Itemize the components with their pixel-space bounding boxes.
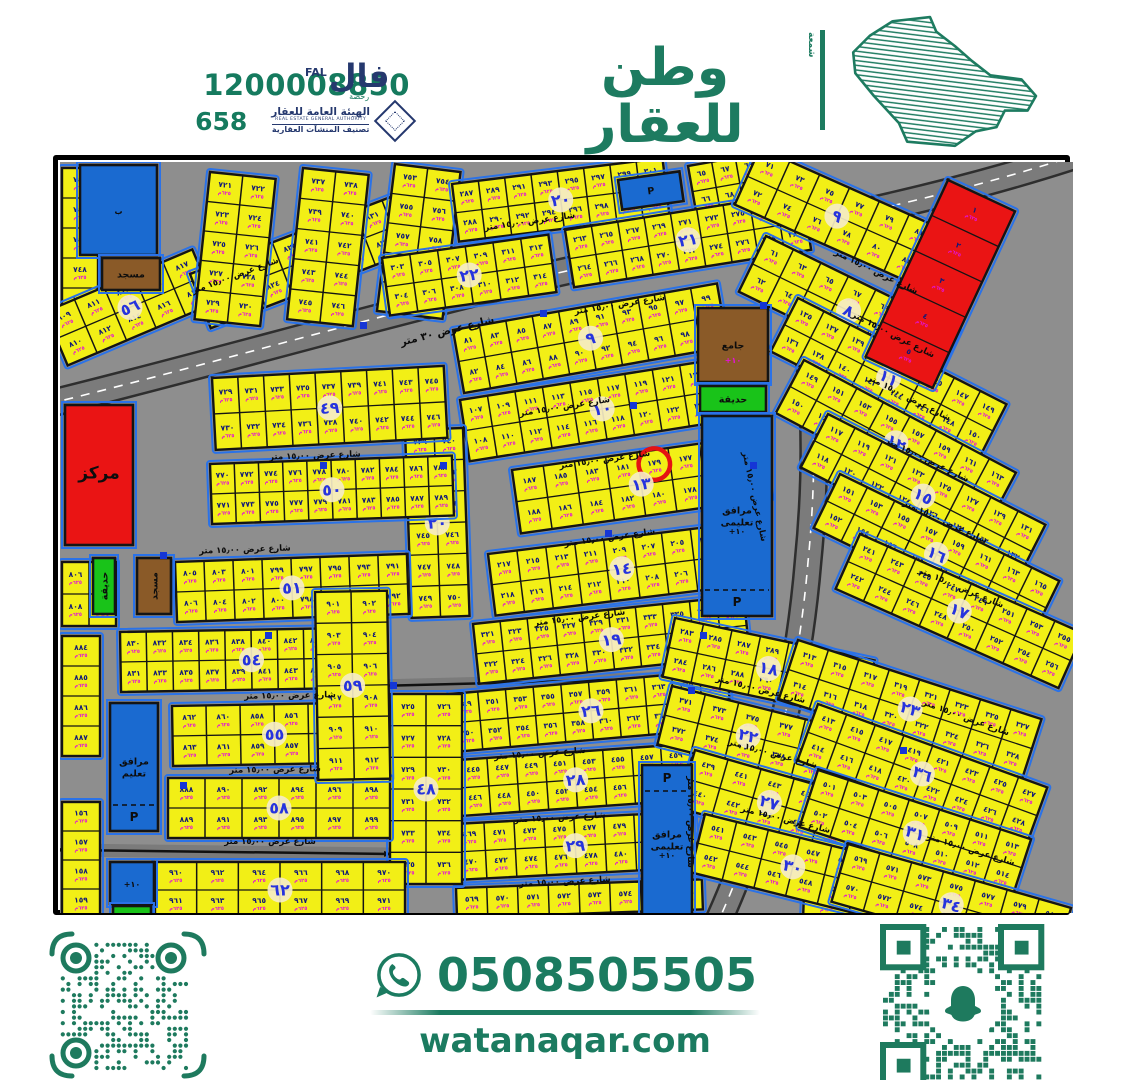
plot-area-label: ٦٢٥م [206, 677, 219, 683]
street-name-label: شارع عرض ١٥٫٠٠ متر [243, 690, 336, 702]
plot-cell[interactable]: ١٥٩ [74, 896, 88, 905]
plot-cell[interactable]: ٨١ [463, 335, 474, 345]
plot-cell[interactable]: ٨٥٩ [251, 741, 265, 750]
plot-cell[interactable]: ٨٨٧ [74, 733, 88, 742]
utility-dot-icon [605, 530, 612, 537]
plot-cell[interactable]: ٧٧٧ [289, 498, 303, 507]
plot-cell[interactable]: ٩١٢ [365, 755, 379, 764]
plot-cell[interactable]: ٢١٢ [587, 579, 602, 590]
plot-cell[interactable]: ٩٦٧ [294, 896, 308, 905]
plot-cell[interactable]: ٧٩١ [386, 561, 400, 570]
plot-cell[interactable]: ٧٥٨ [428, 235, 443, 246]
plot-cell[interactable]: ٩٠٣ [327, 631, 341, 640]
plot-cell[interactable]: ٤٥٥ [611, 754, 626, 764]
plot-cell[interactable]: ٧٤٨ [73, 265, 87, 274]
plot-cell[interactable]: ٣٦٣ [651, 682, 666, 692]
plot-cell[interactable]: ٣١١ [501, 246, 516, 257]
plot-cell[interactable]: ٣٢٨ [565, 650, 580, 660]
plot-cell[interactable]: ٧٤١ [373, 379, 387, 389]
plot-cell[interactable]: ٧٤٣ [301, 267, 316, 277]
special-area-6[interactable]: حديقة [697, 383, 769, 415]
brand-name-arabic: وطن للعقار [520, 40, 810, 154]
plot-area-label: ٦٢٥م [217, 510, 230, 516]
plot-cell[interactable]: ٨٩٤ [291, 785, 305, 794]
plot-cell[interactable]: ٩٧٠ [377, 868, 391, 877]
plot-cell[interactable]: ١٨٤ [589, 498, 604, 509]
plot-cell[interactable]: ٨٦٠ [216, 712, 230, 721]
plot-cell[interactable]: ٨٠٢ [242, 596, 256, 605]
plot-cell[interactable]: ٩٦٥ [252, 896, 266, 905]
plot-cell[interactable]: ٤٥٦ [613, 782, 628, 792]
plot-cell[interactable]: ٤٤٥ [466, 764, 481, 774]
plot-cell[interactable]: ٧٣٥ [296, 383, 311, 393]
plot-cell[interactable]: ٨٨٩ [180, 815, 194, 824]
plot-cell[interactable]: ٧٣٠ [220, 423, 234, 433]
plot-cell[interactable]: ٧٢٣ [215, 209, 230, 219]
plot-cell[interactable]: ٧٩٧ [299, 564, 313, 573]
plot-cell[interactable]: ٣٥٢ [488, 725, 503, 735]
block-number: ٥٩ [343, 676, 363, 695]
plot-area-label: ٦٢٥م [434, 473, 447, 479]
plot-cell[interactable]: ٢٩٧ [591, 172, 606, 183]
plot-cell[interactable]: ٩٦١ [169, 896, 183, 905]
plot-cell[interactable]: ٤٧٤ [524, 854, 538, 864]
plot-cell[interactable]: ٧٣٦ [437, 860, 451, 869]
plot-cell[interactable]: ٩٠٢ [362, 599, 376, 608]
plot-cell[interactable]: ١٥٦ [74, 809, 88, 818]
plot-cell[interactable]: ٣٥١ [485, 696, 499, 706]
plot-cell[interactable]: ٧٤٦ [426, 412, 441, 422]
plot-cell[interactable]: ٧٧٥ [265, 499, 279, 508]
special-area-0[interactable]: ب [77, 162, 160, 258]
plot-cell[interactable]: ٧٢٤ [248, 213, 263, 223]
plot-cell[interactable]: ٧٥٦ [432, 205, 447, 216]
plot-area-label: ٦٢٥م [486, 706, 500, 713]
plot-cell[interactable]: ٧٤٤ [401, 413, 415, 423]
block-number: ٤٩ [319, 398, 340, 418]
plot-cell[interactable]: ٧٣٩ [308, 206, 323, 216]
plot-cell[interactable]: ٩٠٩ [328, 725, 342, 734]
plot-cell[interactable]: ١٨٠ [651, 489, 666, 500]
block-number: ٢٠ [550, 189, 572, 210]
plot-cell[interactable]: ٧٧٦ [288, 468, 302, 477]
plot-cell[interactable]: ٧٥٣ [403, 172, 418, 183]
plot-cell[interactable]: ٢٠٦ [674, 568, 689, 579]
plot-cell[interactable]: ٤٧٠ [464, 857, 478, 867]
plot-cell[interactable]: ١٥٨ [74, 867, 88, 876]
plot-cell[interactable]: ٢٩٣ [538, 178, 553, 189]
plot-cell[interactable]: ٣٢٣ [507, 626, 522, 636]
plot-cell[interactable]: ٤٥٠ [526, 788, 540, 798]
plot-cell[interactable]: ٧٧٣ [241, 499, 255, 508]
special-area-11[interactable]: +١٠ [107, 859, 157, 907]
plot-cell[interactable]: ٨٦٣ [183, 743, 197, 752]
plot-cell[interactable]: ٩١٠ [364, 724, 378, 733]
plot-cell[interactable]: ٢٩٨ [594, 201, 609, 212]
plot-cell[interactable]: ٩٠١ [326, 599, 340, 608]
special-area-label: مسجد [150, 572, 161, 600]
plot-cell[interactable]: ٧٣٠ [437, 765, 451, 774]
plot-strip[interactable]: ٧٣٧٦٢٥م٧٣٨٦٢٥م٧٣٩٦٢٥م٧٤٠٦٢٥م٧٤١٦٢٥م٧٤٢٦٢… [284, 165, 372, 330]
plot-cell[interactable]: ٧٨٠ [336, 466, 350, 475]
plot-cell[interactable]: ٧٨٤ [385, 464, 399, 473]
plot-area-label: ٦٢٥م [336, 878, 349, 884]
plot-cell[interactable]: ٥٦٩ [465, 894, 479, 903]
plot-area-label: ٦٢٥م [328, 703, 341, 709]
plot-cell[interactable]: ٤٥٣ [582, 756, 597, 766]
plot-area-label: ٦٢٥م [185, 608, 198, 614]
plot-area-label: ٦٢٥م [378, 878, 391, 884]
plot-cell[interactable]: ٨٣٣ [153, 668, 167, 677]
plot-cell[interactable]: ٧٤٥ [424, 376, 439, 386]
plot-cell[interactable]: ٨٩٣ [254, 815, 268, 824]
plot-area-label: ٦٢٥م [498, 801, 511, 808]
plot-cell[interactable]: ٢١٧ [497, 559, 512, 570]
plot-cell[interactable]: ٩٤ [627, 338, 638, 348]
plot-cell[interactable]: ٧٣٤ [437, 829, 451, 838]
plot-cell[interactable]: ٣٢٤ [511, 656, 526, 666]
plot-area-label: ٦٢٥م [555, 862, 568, 869]
plot-area-label: ٦٢٥م [329, 735, 342, 741]
plot-cell[interactable]: ٩٦٢ [211, 868, 225, 877]
plot-cell[interactable]: ٧٤١ [305, 237, 320, 247]
plot-area-label: ٦٢٥م [437, 712, 450, 718]
plot-cell[interactable]: ٧٧٤ [264, 469, 278, 478]
map-block-27[interactable]: ٩٠١٦٢٥م٩٠٢٦٢٥م٩٠٣٦٢٥م٩٠٤٦٢٥م٩٠٥٦٢٥م٩٠٦٦٢… [312, 588, 393, 783]
plot-cell[interactable]: ٣٢١ [480, 629, 495, 639]
plot-cell[interactable]: ٢٨٩ [485, 185, 500, 196]
plot-cell[interactable]: ٨٣٢ [153, 638, 167, 647]
map-block-19[interactable]: ٧٢٥٦٢٥م٧٢٦٦٢٥م٧٢٧٦٢٥م٧٢٨٦٢٥م٧٢٩٦٢٥م٧٣٠٦٢… [387, 691, 465, 887]
plot-cell[interactable]: ٢٨٨ [463, 217, 478, 228]
special-area-10[interactable]: مرافقتعليمP [107, 700, 161, 834]
plot-cell[interactable]: ٩٠٥ [327, 662, 341, 671]
plot-cell[interactable]: ٣٥٦ [543, 720, 558, 730]
plot-cell[interactable]: ٢١٤ [558, 583, 573, 594]
plot-cell[interactable]: ٢١١ [583, 548, 598, 559]
plot-cell[interactable]: ٨٣١ [127, 669, 141, 678]
plot-cell[interactable]: ٨٨٤ [74, 643, 88, 652]
plot-cell[interactable]: ٨٠١ [241, 566, 255, 575]
plot-cell[interactable]: ٨٨٦ [74, 703, 88, 712]
plot-cell[interactable]: ٧٢٧ [401, 734, 415, 743]
plot-cell[interactable]: ٣١٤ [533, 271, 548, 282]
plot-cell[interactable]: ٧٤٢ [375, 415, 390, 425]
plot-cell[interactable]: ٥٧٤ [618, 889, 632, 898]
plot-cell[interactable]: ٨٩٩ [365, 815, 379, 824]
special-area-sub: +١٠ [729, 527, 745, 536]
plot-cell[interactable]: ٨٠٨ [69, 602, 83, 611]
plot-cell[interactable]: ٧٧١ [217, 500, 231, 509]
plot-cell[interactable]: ٧٨٥ [386, 494, 400, 503]
special-area-4[interactable]: مسجد [134, 555, 174, 617]
plot-cell[interactable]: ٨٥٧ [285, 741, 299, 750]
plot-cell[interactable]: ٧٤٢ [337, 240, 352, 250]
plot-cell[interactable]: ٤٤٨ [497, 790, 512, 800]
plot-cell[interactable]: ٤٧٣ [522, 826, 537, 836]
map-block-26[interactable]: ٨٨٨٦٢٥م٨٩٠٦٢٥م٨٩٢٦٢٥م٨٩٤٦٢٥م٨٩٦٦٢٥م٨٩٨٦٢… [165, 775, 393, 841]
plot-cell[interactable]: ٥٧٢ [557, 891, 571, 900]
plot-cell[interactable]: ٩٦٨ [336, 868, 350, 877]
plot-area-label: ٦٢٥م [254, 825, 267, 831]
plot-cell[interactable]: ٨٠٦ [184, 598, 198, 607]
plot-cell[interactable]: ٤٧٩ [612, 821, 627, 831]
plot-cell[interactable]: ٣٢٢ [484, 659, 499, 669]
subdivision-map-frame: ٧٤٥٦٢٥م٧٤٦٦٢٥م٧٤٧٦٢٥م٧٤٨٦٢٥م٧٤٩٦٢٥م٨٠٩٦٢… [53, 155, 1070, 915]
plot-area-label: ٦٢٥م [525, 864, 538, 871]
plot-cell[interactable]: ٧٥٤ [435, 176, 450, 187]
plot-cell[interactable]: ٥٧١ [526, 892, 540, 901]
plot-cell[interactable]: ٧٣١ [401, 797, 415, 806]
plot-cell[interactable]: ٧٣١ [244, 386, 258, 396]
special-area-2[interactable]: مركز [62, 402, 136, 548]
plot-cell[interactable]: ٣٠٤ [394, 290, 409, 301]
plot-area-label: ٦٢٥م [154, 678, 167, 684]
plot-cell[interactable]: ٣٦١ [624, 684, 638, 694]
plot-cell[interactable]: ٢١٨ [500, 590, 515, 601]
plot-cell[interactable]: ٤٨٠ [614, 849, 628, 859]
plot-cell[interactable]: ٧٤٩ [418, 593, 432, 602]
map-block-21[interactable]: ٧٢٩٦٢٥م٧٣١٦٢٥م٧٣٣٦٢٥م٧٣٥٦٢٥م٧٣٧٦٢٥م٧٣٩٦٢… [209, 363, 451, 453]
plot-area-label: ٦٢٥م [425, 386, 438, 393]
plot-cell[interactable]: ٧٣٦ [298, 419, 313, 429]
plot-cell[interactable]: ٧٢٥ [212, 239, 227, 249]
street-name-label: شارع عرض ١٥٫٠٠ متر [228, 764, 321, 776]
plot-area-label: ٦٢٥م [314, 507, 327, 513]
block-number: ٥٤ [242, 650, 262, 669]
plot-cell[interactable]: ٣٥٣ [513, 694, 528, 704]
plot-area-label: ٦٢٥م [221, 433, 234, 440]
block-number: ٢٨ [565, 770, 586, 790]
plot-area-label: ٦٢٥م [258, 676, 271, 682]
plot-cell[interactable]: ٣٥٧ [568, 689, 583, 699]
plot-cell[interactable]: ٨٦٢ [182, 713, 196, 722]
plot-cell[interactable]: ٨٩٢ [254, 785, 268, 794]
plot-area-label: ٦٢٥م [219, 397, 232, 404]
plot-cell[interactable]: ٢٩٥ [564, 175, 579, 186]
plot-cell[interactable]: ٢٠٥ [670, 537, 685, 548]
plot-cell[interactable]: ٧٩٣ [357, 562, 371, 571]
plot-cell[interactable]: ٧٤٣ [399, 377, 414, 387]
plot-area-label: ٦٢٥م [419, 604, 432, 610]
plot-cell[interactable]: ٨٩٨ [365, 785, 379, 794]
plot-cell[interactable]: ٢٩١ [512, 182, 527, 193]
block-number: ٢٩ [565, 836, 586, 856]
plot-area-label: ٦٢٥م [495, 865, 508, 872]
plot-cell[interactable]: ٧٩٢ [387, 591, 401, 600]
plot-cell[interactable]: ٢١٣ [554, 552, 569, 563]
qr-code-snapchat[interactable] [878, 922, 1058, 1080]
plot-cell[interactable]: ٩٠٤ [363, 630, 377, 639]
special-area-5[interactable]: جامع+١٠ [695, 305, 771, 385]
plot-cell[interactable]: ٨٩١ [217, 815, 231, 824]
plot-cell[interactable]: ٨٦١ [217, 742, 231, 751]
plot-cell[interactable]: ٨٤٢ [284, 636, 298, 645]
plot-cell[interactable]: ٧٢٨ [437, 734, 451, 743]
plot-cell[interactable]: ٧٣٤ [272, 420, 286, 430]
plot-area-label: ٦٢٥م [328, 795, 341, 801]
plot-cell[interactable]: ٨٤٣ [284, 666, 298, 675]
plot-cell[interactable]: ٧٨٧ [410, 494, 424, 503]
plot-cell[interactable]: ٧٢٩ [219, 387, 234, 397]
plot-cell[interactable]: ٨٠٦ [69, 570, 83, 579]
plot-cell[interactable]: ٣٥٥ [541, 691, 556, 701]
plot-cell[interactable]: ٨٥٦ [284, 711, 298, 720]
plot-cell[interactable]: ٣٥٩ [596, 687, 611, 697]
plot-cell[interactable]: ٨٥٨ [250, 711, 264, 720]
plot-cell[interactable]: ٤٧٧ [582, 823, 597, 833]
plot-area-label: ٦٢٥م [401, 424, 414, 431]
plot-cell[interactable]: ٧٨٣ [362, 495, 376, 504]
plot-area-label: ٦٢٥م [285, 676, 298, 682]
plot-cell[interactable]: ٧٢١ [218, 180, 233, 190]
plot-cell[interactable]: ٤٤٦ [468, 792, 483, 802]
plot-cell[interactable]: ٧٣٢ [437, 797, 451, 806]
plot-cell[interactable]: ٤٥٧ [640, 752, 655, 762]
website-link[interactable]: watanaqar.com [340, 1021, 790, 1061]
plot-cell[interactable]: ٨٠٤ [213, 597, 227, 606]
plot-cell[interactable]: ٨٩٠ [217, 785, 231, 794]
plot-cell[interactable]: ٣٦٢ [626, 713, 641, 723]
plot-cell[interactable]: ٩٠٨ [364, 693, 378, 702]
plot-cell[interactable]: ٧٤٨ [446, 561, 460, 570]
plot-cell[interactable]: ٧٢٩ [206, 298, 221, 308]
plot-cell[interactable]: ٧٤٤ [334, 270, 349, 280]
special-area-1[interactable]: مسجد [99, 255, 163, 293]
plot-cell[interactable]: ٣٢٦ [538, 653, 553, 663]
plot-cell[interactable]: ٢١٥ [525, 555, 540, 566]
plot-cell[interactable]: ٨٠٣ [212, 567, 226, 576]
plot-cell[interactable]: ٨٣٦ [205, 637, 219, 646]
plot-cell[interactable]: ٨٣٠ [126, 639, 140, 648]
plot-cell[interactable]: ٧٤٠ [349, 416, 363, 426]
plot-cell[interactable]: ٨٣٤ [179, 638, 193, 647]
plot-cell[interactable]: ٢٨٧ [459, 188, 474, 199]
plot-cell[interactable]: ٨٣٧ [205, 667, 219, 676]
plot-area-label: ٦٢٥م [251, 752, 264, 758]
plot-cell[interactable]: ٧٤٥ [298, 297, 313, 307]
plot-cell[interactable]: ٧٤٧ [417, 562, 431, 571]
plot-strip[interactable]: ٨٨٤٦٢٥م٨٨٥٦٢٥م٨٨٦٦٢٥م٨٨٧٦٢٥م [60, 633, 103, 759]
plot-cell[interactable]: ٧٨٩ [434, 493, 448, 502]
plot-area-label: ٦٢٥م [169, 878, 182, 884]
map-block-28[interactable]: ٩٦٠٦٢٥م٩٦٢٦٢٥م٩٦٤٦٢٥م٩٦٦٦٢٥م٩٦٨٦٢٥م٩٧٠٦٢… [152, 859, 408, 913]
authority-logo-icon [374, 100, 416, 142]
plot-cell[interactable]: ٨٩٥ [291, 815, 305, 824]
plot-cell[interactable]: ٨٩٦ [328, 785, 342, 794]
plot-cell[interactable]: ٧٥٧ [395, 231, 410, 242]
plot-cell[interactable]: ٧٥٠ [447, 592, 461, 601]
plot-area-label: ٦٢٥م [243, 606, 256, 612]
plot-cell[interactable]: ٧٢٩ [401, 765, 415, 774]
plot-cell[interactable]: ٧٣٢ [246, 422, 261, 432]
plot-area-label: ٦٢٥م [585, 861, 598, 868]
plot-cell[interactable]: ٥٧٣ [588, 890, 602, 899]
plot-area-label: ٦٢٥م [401, 839, 414, 845]
plot-cell[interactable]: ٧٤٦ [331, 301, 346, 311]
plot-cell[interactable]: ١٥٧ [74, 838, 88, 847]
plot-cell[interactable]: ١٨١ [615, 462, 630, 473]
plot-cell[interactable]: ٩٠٦ [363, 661, 377, 670]
plot-cell[interactable]: ٧٧٠ [215, 470, 229, 479]
utility-dot-icon [760, 302, 767, 309]
plot-cell[interactable]: ٢١٦ [529, 586, 544, 597]
plot-cell[interactable]: ٢٠٨ [645, 572, 660, 583]
plot-cell[interactable]: ٨٨٥ [74, 673, 88, 682]
plot-area-label: ٦٢٥م [284, 646, 297, 652]
plot-cell[interactable]: ٤٤٩ [524, 760, 539, 770]
whatsapp-number[interactable]: 0508505505 [437, 948, 757, 1002]
plot-cell[interactable]: ٩١١ [329, 756, 343, 765]
plot-cell[interactable]: ٧٩٩ [270, 565, 284, 574]
plot-cell[interactable]: ٩٦٤ [252, 868, 266, 877]
plot-cell[interactable]: ٣٥٤ [515, 723, 529, 733]
plot-cell[interactable]: ٨٣٨ [231, 637, 245, 646]
plot-cell[interactable]: ٢٠٧ [641, 541, 656, 552]
plot-cell[interactable]: ٧٢٥ [401, 702, 415, 711]
subdivision-map[interactable]: ٧٤٥٦٢٥م٧٤٦٦٢٥م٧٤٧٦٢٥م٧٤٨٦٢٥م٧٤٩٦٢٥م٨٠٩٦٢… [60, 162, 1063, 908]
utility-dot-icon [540, 310, 547, 317]
plot-area-label: ٦٢٥م [271, 394, 284, 401]
plot-cell[interactable]: ٩٧١ [377, 896, 391, 905]
plot-cell[interactable]: ٢٠٩ [612, 545, 627, 556]
plot-cell[interactable]: ٧٩٥ [328, 563, 342, 572]
plot-cell[interactable]: ٤٧٢ [494, 855, 509, 865]
plot-area-label: ٦٢٥م [365, 795, 378, 801]
plot-cell[interactable]: ٩٦٣ [211, 896, 225, 905]
plot-cell[interactable]: ٧٣٨ [344, 180, 359, 190]
block-number: ٥١ [282, 578, 302, 598]
plot-cell[interactable]: ٧٣٠ [238, 301, 253, 311]
map-block-22[interactable]: ٧٧٠٦٢٥م٧٧٢٦٢٥م٧٧٤٦٢٥م٧٧٦٦٢٥م٧٧٨٦٢٥م٧٨٠٦٢… [207, 452, 457, 527]
plot-cell[interactable]: ٧٧٢ [240, 469, 254, 478]
plot-strip[interactable]: ٧٢١٦٢٥م٧٢٢٦٢٥م٧٢٣٦٢٥م٧٢٤٦٢٥م٧٢٥٦٢٥م٧٢٦٦٢… [191, 169, 279, 330]
plot-cell[interactable]: ٣٣٣ [643, 612, 658, 622]
brand-side-text: شمعة [806, 32, 816, 132]
qr-code-website[interactable] [48, 930, 208, 1080]
plot-cell[interactable]: ٨٣٥ [179, 668, 193, 677]
plot-cell[interactable]: ٩٠ [574, 348, 585, 358]
plot-cell[interactable]: ٤٥١ [553, 758, 567, 768]
plot-cell[interactable]: ٧٢٦ [437, 702, 451, 711]
plot-cell[interactable]: ٧٣٩ [347, 380, 362, 390]
plot-cell[interactable]: ٧٣٣ [270, 384, 285, 394]
plot-cell[interactable]: ٧٤٦ [445, 530, 459, 539]
plot-cell[interactable]: ٧٣٧ [311, 176, 326, 186]
plot-cell[interactable]: ٧٨٦ [409, 464, 423, 473]
plot-cell[interactable]: ٨٩٧ [328, 815, 342, 824]
plot-cell[interactable]: ٩٦٦ [294, 868, 308, 877]
plot-cell[interactable]: ٥٧٠ [495, 893, 509, 902]
plot-cell[interactable]: ٧٢٦ [245, 242, 260, 252]
special-area-3[interactable]: حديقة [90, 555, 118, 617]
plot-cell[interactable]: ٤٧٥ [552, 824, 567, 834]
plot-cell[interactable]: ٤٤٧ [495, 762, 510, 772]
plot-cell[interactable]: ٣٣٤ [646, 642, 661, 652]
plot-cell[interactable]: ٧٥٥ [399, 201, 414, 212]
plot-cell[interactable]: ٨٤ [495, 362, 506, 372]
plot-cell[interactable]: ٧٤٠ [341, 210, 356, 220]
plot-cell[interactable]: ٤٧١ [492, 827, 506, 837]
plot-cell[interactable]: ٧٣٣ [401, 829, 415, 838]
plot-cell[interactable]: ٨٠٥ [183, 568, 197, 577]
plot-cell[interactable]: ٧٣٧ [322, 382, 337, 392]
plot-cell[interactable]: ٧٨٢ [361, 465, 375, 474]
plot-strip[interactable]: ١٥٦٦٢٥م١٥٧٦٢٥م١٥٨٦٢٥م١٥٩٦٢٥م [60, 799, 103, 913]
plot-cell[interactable]: ٩٦٠ [169, 868, 183, 877]
plot-cell[interactable]: ٧٢٢ [251, 183, 266, 193]
plot-cell[interactable]: ٩٦٩ [336, 896, 350, 905]
